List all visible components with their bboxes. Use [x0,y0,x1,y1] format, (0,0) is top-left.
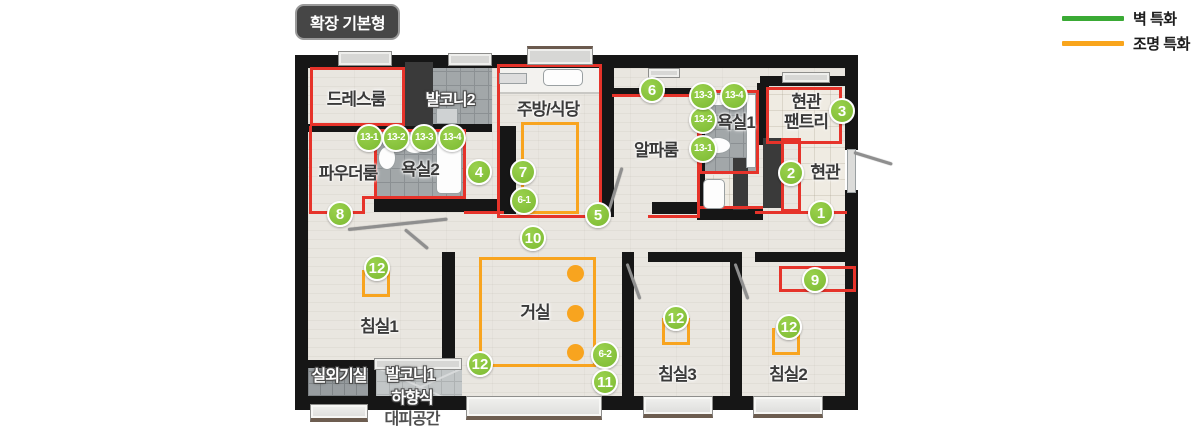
room-label-kitchen-dining: 주방/식당 [517,100,579,120]
kitchen-sink [543,69,583,86]
floor-plan: 드레스룸발코니2파우더룸욕실2주방/식당알파룸욕실1현관 팬트리현관침실1거실침… [0,0,1200,437]
window [448,53,492,66]
feature-badge-13-4: 13-4 [438,124,466,152]
washstand-fixture [703,179,725,209]
wall [652,202,698,214]
wall-feature-line [309,126,312,214]
wall [648,252,730,262]
feature-badge-13-1: 13-1 [689,135,717,163]
feature-badge-13-1: 13-1 [355,124,383,152]
washer-fixture [436,108,458,124]
feature-badge-8: 8 [327,201,353,227]
window-sill [643,396,713,418]
window-sill [466,396,602,420]
feature-badge-11: 11 [592,369,618,395]
feature-badge-12: 12 [776,314,802,340]
feature-badge-12: 12 [467,351,493,377]
room-label-evac-space-line1: 하향식 [391,390,432,408]
feature-badge-13-4: 13-4 [720,82,748,110]
feature-badge-5: 5 [585,202,611,228]
feature-badge-13-3: 13-3 [410,124,438,152]
room-label-entrance-pantry: 현관 팬트리 [784,92,828,131]
room-label-bathroom1: 욕실1 [717,113,755,133]
lighting-dot [567,344,584,361]
feature-badge-2: 2 [778,160,804,186]
feature-badge-6: 6 [639,77,665,103]
feature-badge-6-1: 6-1 [510,187,538,215]
door-swing [854,151,893,166]
room-label-alpha-room: 알파룸 [634,141,678,161]
feature-badge-13-2: 13-2 [689,106,717,134]
room-label-living-room: 거실 [520,303,549,323]
feature-badge-12: 12 [364,255,390,281]
room-label-bathroom2: 욕실2 [401,160,439,180]
feature-badge-10: 10 [520,225,546,251]
feature-badge-7: 7 [510,159,536,185]
room-label-entrance: 현관 [810,163,839,183]
room-label-bedroom1: 침실1 [360,317,398,337]
wall-feature-line [362,196,376,199]
feature-badge-1: 1 [808,200,834,226]
room-label-evac-space-line2: 대피공간 [385,411,440,429]
wall-feature-line [648,215,700,218]
window [527,46,593,65]
room-label-bedroom3: 침실3 [658,365,696,385]
feature-badge-3: 3 [829,98,855,124]
feature-badge-4: 4 [466,159,492,185]
room-label-dressroom: 드레스룸 [327,90,386,110]
wall [845,190,858,410]
room-label-bedroom2: 침실2 [769,365,807,385]
floorplan-page: 확장 기본형 벽 특화 조명 특화 [0,0,1200,437]
feature-badge-6-2: 6-2 [591,341,619,369]
feature-badge-9: 9 [802,267,828,293]
wall [295,55,308,410]
wall [442,252,455,364]
feature-badge-13-2: 13-2 [382,124,410,152]
feature-badge-13-3: 13-3 [689,82,717,110]
room-label-outdoor-unit-room: 실외기실 [312,368,367,386]
room-label-balcony2: 발코니2 [425,92,474,110]
lighting-dot [567,265,584,282]
entrance-door-panel [847,149,856,193]
lighting-dot [567,305,584,322]
room-label-balcony1: 발코니1 [385,367,434,385]
window-sill [753,396,823,418]
window [338,51,392,66]
room-label-powder-room: 파우더룸 [319,164,378,184]
cooktop [499,73,527,84]
window [782,72,830,83]
window-sill [310,404,368,422]
wall [755,252,845,262]
feature-badge-12: 12 [663,305,689,331]
